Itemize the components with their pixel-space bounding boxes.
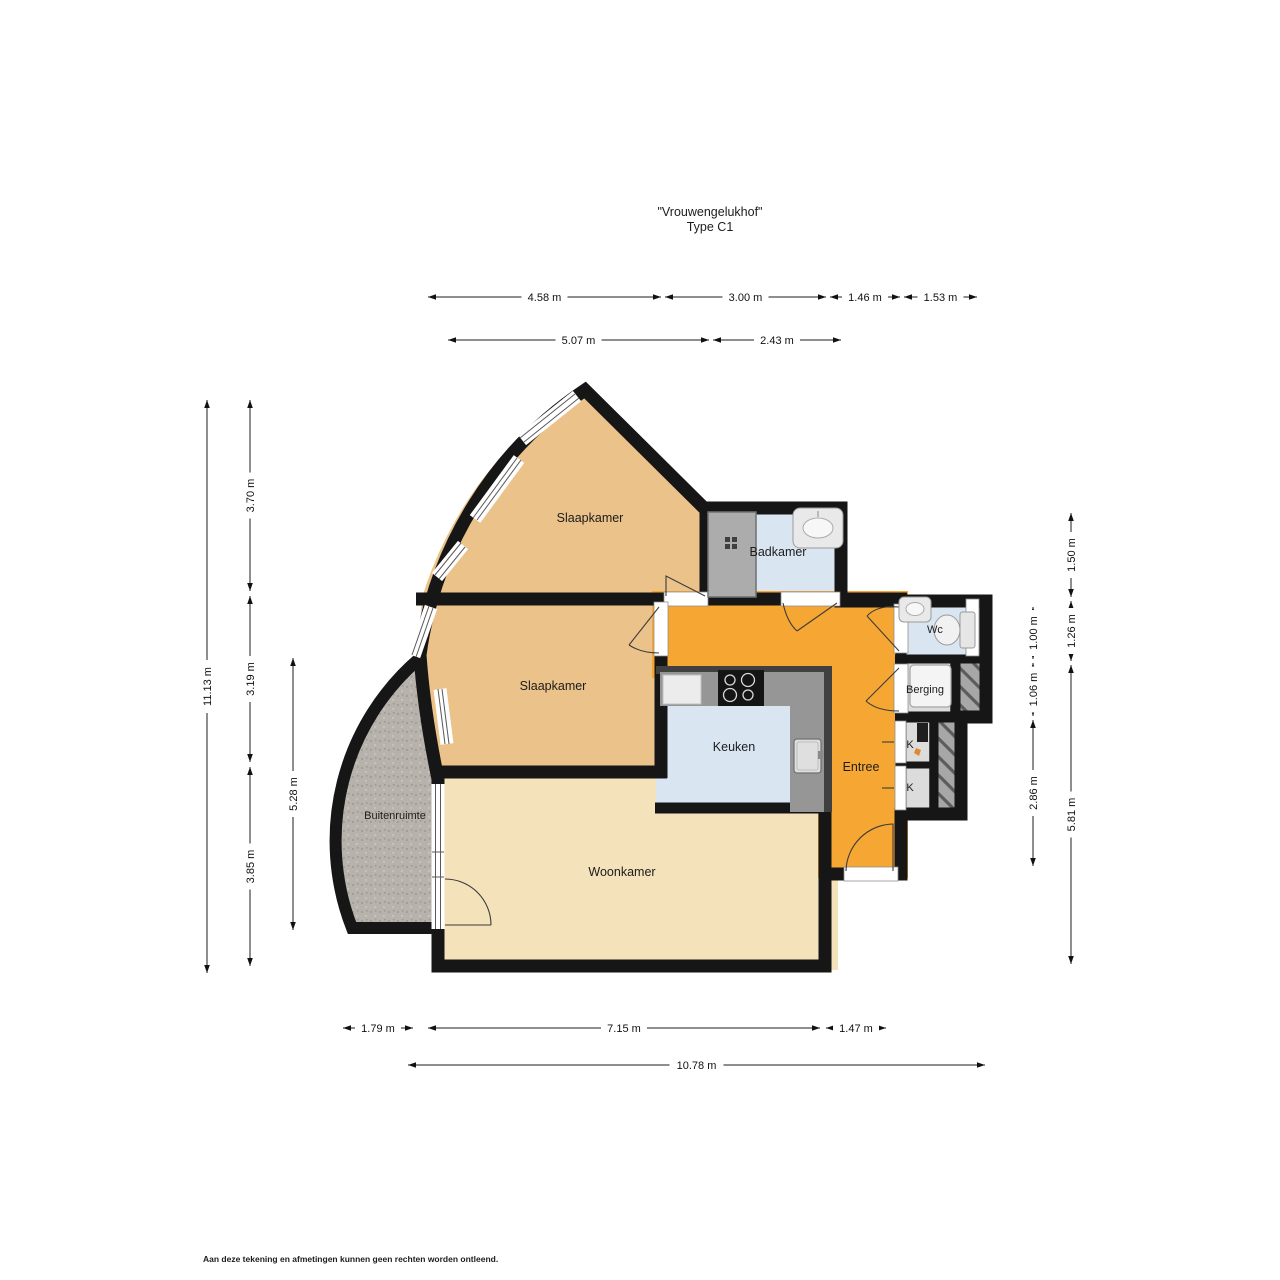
label-woonkamer: Woonkamer [588,865,655,879]
title-line1: "Vrouwengelukhof" [657,205,762,219]
dim-bottom-2: 7.15 m [428,1022,820,1036]
dim-top-1: 4.58 m [428,291,661,305]
dim-left-3: 3.85 m [244,767,258,966]
dim-right-outer-2: 1.26 m [1065,601,1079,661]
svg-text:1.79 m: 1.79 m [361,1023,395,1035]
label-kast-1: K [906,739,914,751]
dim-right-inner-3: 2.86 m [1027,720,1041,866]
disclaimer-text: Aan deze tekening en afmetingen kunnen g… [203,1254,498,1264]
svg-text:3.00 m: 3.00 m [729,292,763,304]
room-slaapkamer-top [421,386,705,601]
svg-text:3.19 m: 3.19 m [245,662,257,696]
dim-top-6: 2.43 m [713,334,841,348]
dim-right-inner-2: 1.06 m [1027,663,1041,716]
svg-text:10.78 m: 10.78 m [677,1060,717,1072]
dim-right-outer-3: 5.81 m [1065,665,1079,964]
svg-text:1.53 m: 1.53 m [924,292,958,304]
label-kast-2: K [906,782,914,794]
dim-right-outer-1: 1.50 m [1065,513,1079,597]
svg-text:5.28 m: 5.28 m [288,777,300,811]
dim-left-total: 11.13 m [201,400,215,973]
floorplan-page: "Vrouwengelukhof" Type C1 [0,0,1280,1280]
dim-bottom-total: 10.78 m [408,1059,985,1073]
window-icon [438,689,449,744]
svg-text:7.15 m: 7.15 m [607,1023,641,1035]
floorplan-svg: "Vrouwengelukhof" Type C1 [0,0,1280,1280]
title-line2: Type C1 [687,220,734,234]
label-entree: Entree [843,760,880,774]
drawing-title: "Vrouwengelukhof" Type C1 [657,205,762,234]
dim-top-3: 1.46 m [830,291,900,305]
svg-text:3.70 m: 3.70 m [245,479,257,513]
svg-text:5.81 m: 5.81 m [1066,798,1078,832]
label-keuken: Keuken [713,740,755,754]
cooktop-icon [718,670,764,706]
dim-right-inner-1: 1.00 m [1027,607,1041,659]
svg-text:2.43 m: 2.43 m [760,335,794,347]
label-badkamer: Badkamer [750,545,807,559]
svg-text:4.58 m: 4.58 m [528,292,562,304]
dim-bottom-1: 1.79 m [343,1022,413,1036]
label-slaapkamer-top: Slaapkamer [557,511,624,525]
dim-top-5: 5.07 m [448,334,709,348]
svg-text:1.47 m: 1.47 m [839,1023,873,1035]
kitchen-sink-icon [794,739,823,773]
dim-left-balcony: 5.28 m [287,658,301,930]
label-berging: Berging [906,684,944,696]
svg-text:5.07 m: 5.07 m [562,335,596,347]
svg-text:1.46 m: 1.46 m [848,292,882,304]
label-buitenruimte: Buitenruimte [364,810,426,822]
balcony-glass-door [432,784,444,929]
dim-top-2: 3.00 m [665,291,826,305]
svg-text:1.06 m: 1.06 m [1028,673,1040,707]
bathroom-sink-icon [793,508,843,548]
dim-top-4: 1.53 m [904,291,977,305]
svg-text:11.13 m: 11.13 m [202,667,214,706]
dim-bottom-3: 1.47 m [826,1022,886,1036]
dim-left-2: 3.19 m [244,596,258,762]
svg-text:3.85 m: 3.85 m [245,850,257,884]
svg-text:2.86 m: 2.86 m [1028,776,1040,810]
svg-text:1.00 m: 1.00 m [1028,616,1040,650]
svg-text:1.50 m: 1.50 m [1066,538,1078,572]
dim-left-1: 3.70 m [244,400,258,591]
label-slaapkamer-mid: Slaapkamer [520,679,587,693]
svg-text:1.26 m: 1.26 m [1066,614,1078,648]
wc-sink-icon [899,597,931,622]
label-wc: Wc [927,624,943,636]
